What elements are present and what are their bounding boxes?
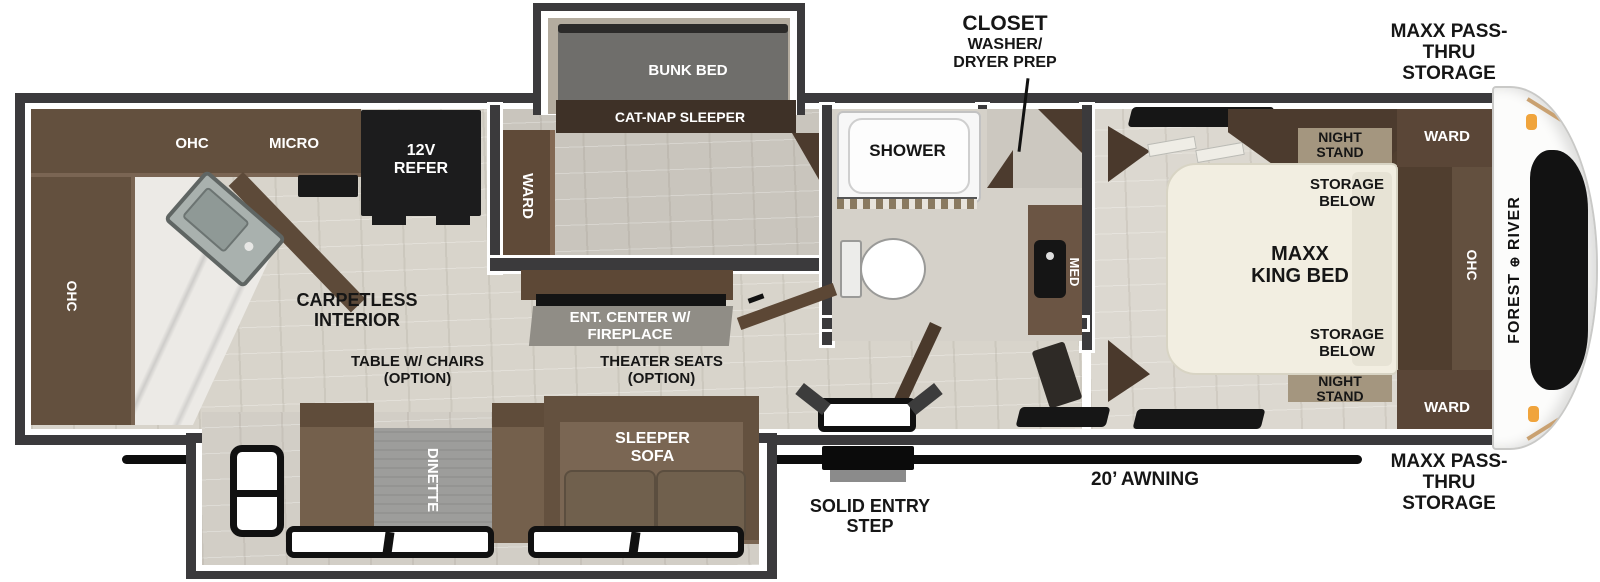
slide-side-window (230, 445, 284, 537)
entry-door-well (818, 398, 916, 432)
bath-left-wall (822, 105, 832, 345)
brand-logo-text: FOREST ⊕ RIVER (1506, 170, 1526, 370)
bunk-bed-headrail (558, 24, 788, 33)
dinette-label: DINETTE (424, 440, 440, 520)
ent-center-label: ENT. CENTER W/ FIREPLACE (555, 310, 705, 343)
entry-step (822, 446, 914, 470)
refer-label: 12V REFER (391, 142, 451, 177)
storage-bottom-label: STORAGE BELOW (1292, 327, 1402, 360)
cap-window-graphic (1530, 150, 1588, 390)
dinette-booth-left (300, 403, 374, 543)
sleeper-sofa-label: SLEEPER SOFA (605, 430, 700, 465)
closet-label-title: CLOSET (925, 12, 1085, 35)
med-label: MED (1065, 247, 1081, 297)
cap-accent-bottom (1534, 396, 1598, 450)
marker-light (1528, 406, 1539, 422)
cat-nap-label: CAT-NAP SLEEPER (590, 110, 770, 125)
sofa-armrest (544, 420, 560, 540)
theater-option-label: THEATER SEATS (OPTION) (584, 354, 739, 387)
marker-light (1526, 114, 1537, 130)
brand-name-second: RIVER (1506, 196, 1523, 250)
king-bed-label: MAXX KING BED (1245, 243, 1355, 287)
bunk-bed-label: BUNK BED (628, 63, 748, 80)
table-option-label: TABLE W/ CHAIRS (OPTION) (340, 354, 495, 387)
ward-bottom-label: WARD (1417, 400, 1477, 417)
front-cap: FOREST ⊕ RIVER (1492, 86, 1598, 450)
window-divider (629, 531, 641, 554)
carpetless-label: CARPETLESS INTERIOR (277, 291, 437, 331)
micro-label: MICRO (260, 136, 328, 153)
ward-top-label: WARD (1417, 129, 1477, 146)
passthru-storage-label-top: MAXX PASS-THRU STORAGE (1378, 22, 1520, 85)
cooktop (298, 175, 358, 197)
slide-bottom-window (528, 526, 744, 558)
slide-bottom-window (286, 526, 494, 558)
closet-label-sub: WASHER/ DRYER PREP (950, 36, 1060, 71)
entry-step-label: SOLID ENTRY STEP (800, 497, 940, 537)
bedroom-ohc-label: OHC (1463, 237, 1479, 293)
awning-label: 20’ AWNING (1060, 470, 1230, 491)
vanity-sink (1034, 240, 1066, 298)
brand-name-first: FOREST (1506, 273, 1523, 344)
floorplan-canvas: FOREST ⊕ RIVER CLOSET WASHER/ DRYER PREP… (0, 0, 1600, 582)
passthru-storage-label-bottom: MAXX PASS-THRU STORAGE (1378, 452, 1520, 515)
vanity-faucet (1046, 252, 1054, 260)
entry-step-shadow (830, 470, 906, 482)
refrigerator-foot (436, 216, 470, 225)
ohc-top-label: OHC (168, 136, 216, 153)
faucet (243, 240, 256, 253)
toilet-tank (840, 240, 862, 298)
bunkroom-left-wall (490, 105, 500, 272)
ohc-side-label: OHC (63, 268, 79, 324)
bedroom-window-bottom (1133, 409, 1266, 429)
bunk-ward-label: WARD (519, 166, 535, 226)
shower-label: SHOWER (840, 142, 975, 161)
window-divider (237, 490, 277, 497)
night-stand-top-label: NIGHT STAND (1304, 130, 1376, 161)
awning-line-left (122, 455, 192, 464)
shower-door-track (837, 197, 977, 209)
brand-tree-icon: ⊕ (1507, 256, 1522, 268)
storage-top-label: STORAGE BELOW (1292, 177, 1402, 210)
toilet-bowl (860, 238, 926, 300)
refrigerator-foot (372, 216, 406, 225)
bath-right-wall (1082, 105, 1092, 350)
window-divider (383, 531, 395, 554)
hall-window (1016, 407, 1111, 427)
night-stand-bottom-label: NIGHT STAND (1304, 374, 1376, 405)
